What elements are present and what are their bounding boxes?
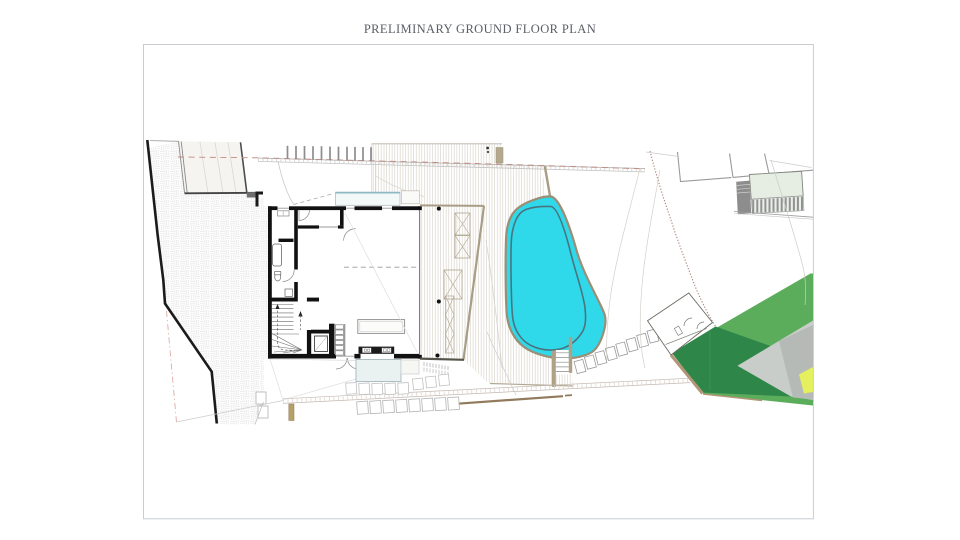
svg-text:PRELIMINARY GROUND FLOOR PLAN: PRELIMINARY GROUND FLOOR PLAN bbox=[364, 22, 596, 36]
